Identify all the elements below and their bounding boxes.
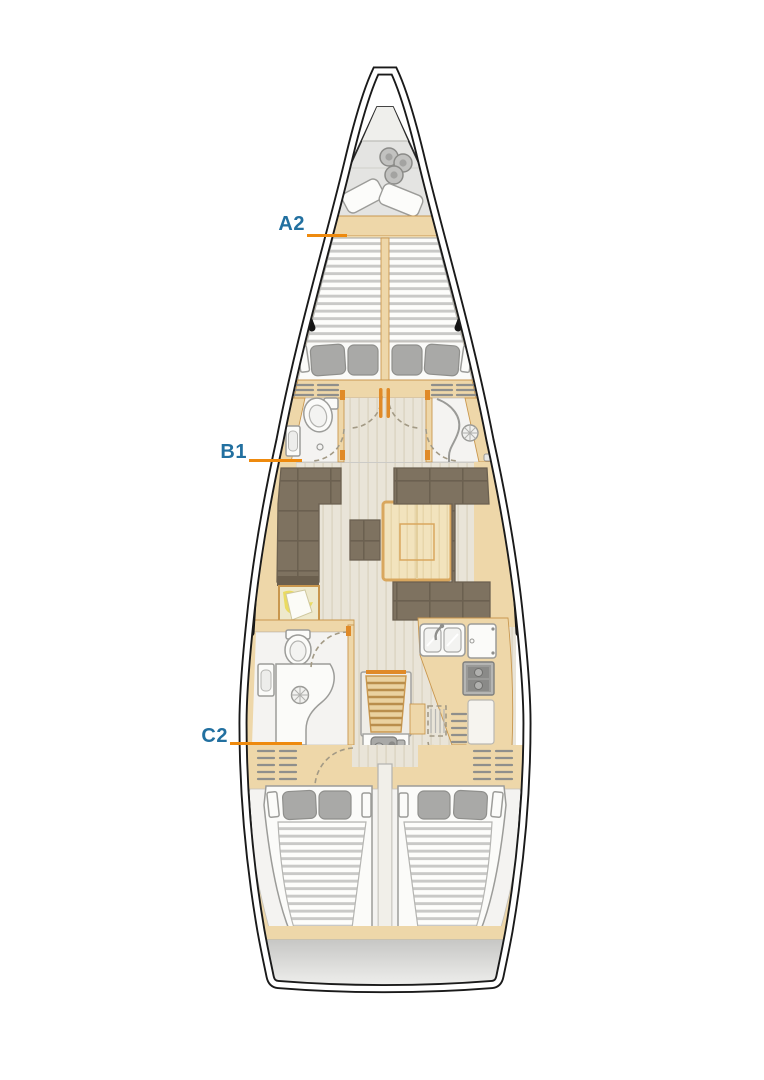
- label-b1: B1: [205, 441, 247, 464]
- hull-interior: [230, 60, 540, 1000]
- bow-anchor-locker: [325, 107, 445, 220]
- bedside-shelf: [362, 793, 371, 817]
- aft-cabins: [238, 745, 532, 941]
- ottoman: [350, 520, 380, 560]
- aft-head: [242, 620, 354, 745]
- side-step: [410, 704, 425, 734]
- salon: [248, 462, 522, 628]
- center-bulkhead: [378, 764, 392, 938]
- galley-fridge: [468, 624, 496, 658]
- floorplan-drawing: [0, 0, 764, 1080]
- yacht-floorplan-diagram: A2 B1 C2: [0, 0, 764, 1080]
- galley-stove: [463, 662, 494, 695]
- salon-table: [383, 502, 451, 580]
- bedside-shelf: [267, 792, 280, 818]
- aft-head-sink: [258, 664, 274, 696]
- forward-heads: [277, 388, 500, 462]
- bedside-shelf: [491, 792, 504, 818]
- berth-center-divider: [381, 238, 389, 396]
- aft-cabin-starboard: [392, 786, 523, 938]
- corridor-floor: [344, 398, 426, 462]
- label-a2: A2: [263, 213, 305, 236]
- leader-line-a2: [307, 234, 347, 237]
- aft-head-toilet: [285, 630, 311, 665]
- leader-line-c2: [230, 742, 302, 745]
- forward-bulkhead: [327, 216, 443, 236]
- forward-head-sink: [286, 426, 300, 456]
- bedside-shelf: [399, 793, 408, 817]
- galley-sink: [420, 624, 465, 656]
- aft-cabin-port: [247, 786, 378, 938]
- leader-line-b1: [249, 459, 302, 462]
- label-c2: C2: [186, 725, 228, 748]
- galley-cabinet: [468, 700, 494, 744]
